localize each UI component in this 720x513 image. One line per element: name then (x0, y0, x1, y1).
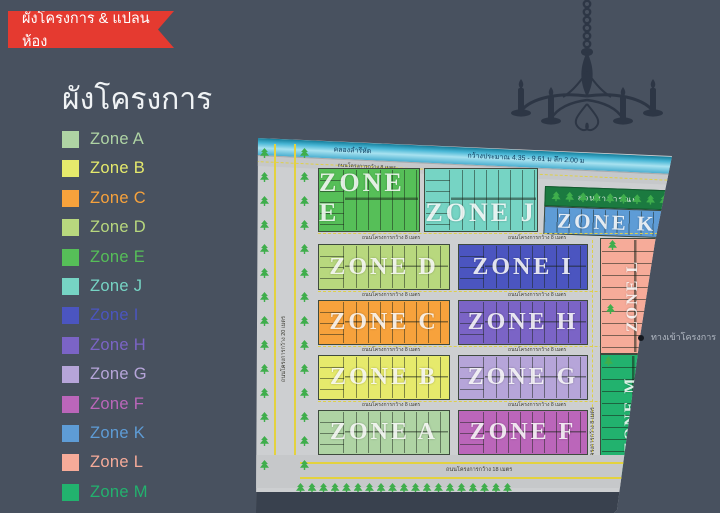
zone-j-label: ZONE J (425, 169, 537, 231)
zone-c-block: ZONE C (318, 300, 450, 345)
tree-icon (260, 364, 269, 374)
entrance-label: ทางเข้าโครงการ (651, 330, 716, 344)
tree-icon (300, 316, 309, 326)
chandelier-icon (487, 0, 687, 140)
zone-k-group: สวนสาธารณะ ZONE K (543, 186, 671, 238)
ribbon-banner: ผังโครงการ & แปลนห้อง (8, 11, 174, 48)
road-label: ถนนโครงการกว้าง 8 เมตร (508, 290, 566, 300)
tree-icon (260, 172, 269, 182)
tree-icon (260, 268, 269, 278)
legend-item-zone-h: Zone H (62, 337, 148, 354)
legend-label: Zone D (90, 218, 146, 237)
zone-f-block: ZONE F (458, 410, 588, 455)
zone-i-swatch (62, 307, 79, 324)
legend-item-zone-b: Zone B (62, 160, 148, 177)
site-plan-map: คลองลำรีหัด กว้างประมาณ 4.35 - 9.61 ม ลึ… (256, 136, 708, 513)
legend-label: Zone H (90, 336, 146, 355)
legend-item-zone-g: Zone G (62, 366, 148, 383)
zone-h-label: ZONE H (459, 301, 587, 344)
legend-item-zone-d: Zone D (62, 219, 148, 236)
legend-item-zone-i: Zone I (62, 307, 148, 324)
legend-label: Zone E (90, 248, 145, 267)
tree-icon (300, 364, 309, 374)
zone-a-swatch (62, 131, 79, 148)
zone-g-block: ZONE G (458, 355, 588, 400)
tree-icon (260, 436, 269, 446)
tree-icon (300, 436, 309, 446)
legend-item-zone-f: Zone F (62, 396, 148, 413)
zone-i-label: ZONE I (459, 245, 587, 289)
zone-k-swatch (62, 425, 79, 442)
zone-c-label: ZONE C (319, 301, 449, 344)
legend-item-zone-a: Zone A (62, 131, 148, 148)
road-line (300, 477, 708, 479)
zone-a-label: ZONE A (319, 411, 449, 454)
tree-icon (565, 192, 574, 202)
zone-b-swatch (62, 160, 79, 177)
tree-icon (260, 196, 269, 206)
entrance-marker (638, 335, 644, 341)
tree-icon (592, 193, 601, 203)
legend-label: Zone G (90, 365, 147, 384)
legend-label: Zone M (90, 483, 148, 502)
zone-l-swatch (62, 454, 79, 471)
zone-j-swatch (62, 278, 79, 295)
road-line (300, 462, 708, 464)
tree-icon (300, 172, 309, 182)
zone-h-block: ZONE H (458, 300, 588, 345)
legend-label: Zone K (90, 424, 145, 443)
road-line (294, 144, 296, 488)
tree-icon (632, 194, 641, 204)
tree-icon (260, 220, 269, 230)
page: ผังโครงการ & แปลนห้อง ผังโครงการ Zone A … (0, 0, 720, 513)
road-label: ถนนโครงการกว้าง 8 เมตร (362, 400, 420, 410)
legend-label: Zone A (90, 130, 144, 149)
canal-name: คลองลำรีหัด (333, 142, 371, 161)
legend-item-zone-l: Zone L (62, 454, 148, 471)
zone-f-label: ZONE F (459, 411, 587, 454)
legend-item-zone-j: Zone J (62, 278, 148, 295)
zone-f-swatch (62, 396, 79, 413)
road-label: ถนนโครงการกว้าง 8 เมตร (508, 233, 566, 243)
zone-e-block: ZONE E (318, 168, 420, 232)
tree-icon (551, 191, 560, 201)
tree-icon (578, 192, 587, 202)
zone-h-swatch (62, 337, 79, 354)
tree-icon (619, 194, 628, 204)
zone-b-label: ZONE B (319, 356, 449, 399)
road-label: ถนนโครงการกว้าง 8 เมตร (362, 345, 420, 355)
zone-j-block: ZONE J (424, 168, 538, 232)
tree-icon (605, 193, 614, 203)
legend-item-zone-m: Zone M (62, 484, 148, 501)
tree-icon (300, 268, 309, 278)
page-title: ผังโครงการ (62, 76, 212, 123)
legend-label: Zone F (90, 395, 144, 414)
legend-label: Zone C (90, 189, 146, 208)
zone-b-block: ZONE B (318, 355, 450, 400)
tree-icon (300, 388, 309, 398)
tree-icon (300, 292, 309, 302)
legend-label: Zone J (90, 277, 142, 296)
zone-g-swatch (62, 366, 79, 383)
zone-m-swatch (62, 484, 79, 501)
road-label: ถนนโครงการกว้าง 18 เมตร (446, 465, 512, 475)
ribbon-label: ผังโครงการ & แปลนห้อง (22, 7, 174, 53)
road-label-vertical: ถนนโครงการกว้าง 20 เมตร (280, 286, 288, 382)
zone-a-block: ZONE A (318, 410, 450, 455)
zone-legend: Zone A Zone B Zone C Zone D Zone E Zone … (62, 131, 148, 513)
road-label: ถนนโครงการกว้าง 8 เมตร (362, 233, 420, 243)
tree-icon (300, 412, 309, 422)
zone-e-swatch (62, 249, 79, 266)
zone-d-label: ZONE D (319, 245, 449, 289)
zone-d-block: ZONE D (318, 244, 450, 290)
legend-item-zone-e: Zone E (62, 249, 148, 266)
legend-label: Zone I (90, 306, 139, 325)
legend-item-zone-c: Zone C (62, 190, 148, 207)
road-label: ถนนโครงการกว้าง 8 เมตร (508, 345, 566, 355)
legend-item-zone-k: Zone K (62, 425, 148, 442)
tree-icon (260, 340, 269, 350)
tree-icon (300, 196, 309, 206)
legend-label: Zone L (90, 453, 143, 472)
tree-icon (646, 195, 655, 205)
tree-icon (300, 244, 309, 254)
tree-icon (260, 316, 269, 326)
tree-icon (260, 244, 269, 254)
road-line (274, 144, 276, 488)
zone-c-swatch (62, 190, 79, 207)
tree-icon (300, 220, 309, 230)
existing-road (256, 492, 708, 513)
tree-icon (260, 412, 269, 422)
tree-icon (260, 388, 269, 398)
tree-icon (659, 195, 668, 205)
zone-e-label: ZONE E (319, 169, 419, 231)
zone-i-block: ZONE I (458, 244, 588, 290)
tree-icon (300, 340, 309, 350)
road-label: ถนนโครงการกว้าง 8 เมตร (362, 290, 420, 300)
legend-label: Zone B (90, 159, 145, 178)
tree-icon (260, 292, 269, 302)
road-label: ถนนโครงการกว้าง 8 เมตร (508, 400, 566, 410)
zone-g-label: ZONE G (459, 356, 587, 399)
zone-d-swatch (62, 219, 79, 236)
